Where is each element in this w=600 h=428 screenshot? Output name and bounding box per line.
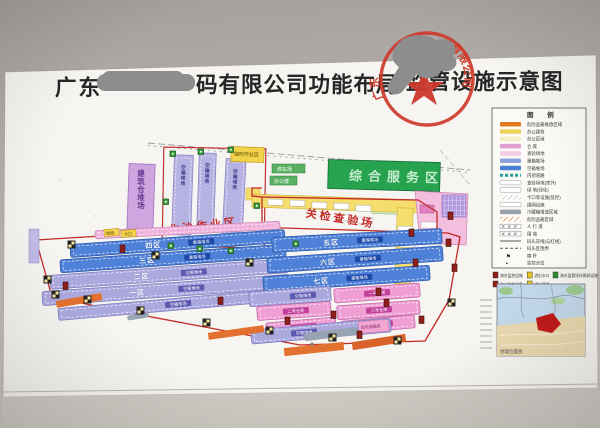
temp-area-label: 临时作业区: [234, 151, 259, 159]
legend-label: 空箱堆场: [527, 165, 545, 172]
legend-label: 绿 地(绿化): [527, 187, 549, 194]
gate-label: 卡口: [124, 230, 132, 237]
customs-facility-marker: [384, 299, 389, 307]
road-label-box: [356, 205, 371, 212]
legend-swatch: [500, 166, 521, 171]
camera-checkpoint-marker: [394, 337, 401, 344]
legend-swatch: [500, 159, 521, 164]
yard-badge-label: 空箱堆场: [203, 162, 210, 185]
legend-label: 旗 杆: [527, 252, 538, 259]
legend-swatch: [500, 188, 521, 193]
road-label-box: [290, 200, 305, 207]
legend-chip: 海关监控设施: [493, 272, 523, 278]
title-redaction-blob-2: [103, 71, 183, 83]
marker-dot: [199, 248, 201, 250]
legend-label: 危险品箱区域: [527, 216, 554, 223]
plan-drawing: 广东 码有限公司功能布局 监管设施示意图 广东 有限公司 建筑仓堆场 空箱堆场空…: [0, 0, 600, 428]
construction-yard: 建筑仓堆场: [127, 164, 155, 233]
zone-label: 一区: [129, 288, 146, 297]
legend-label: 卡口等设施(监控): [527, 194, 561, 201]
road-label-box: [312, 202, 327, 209]
zone-label: 四区: [145, 241, 162, 250]
marker-dot: [200, 151, 202, 153]
legend-swatch: [500, 137, 521, 142]
customs-facility-marker: [218, 297, 223, 305]
legend-swatch: [500, 129, 521, 134]
customs-facility-marker: [63, 282, 68, 290]
marker-dot: [165, 201, 167, 203]
customs-facility-marker: [376, 288, 381, 296]
camera-checkpoint-marker: [137, 307, 144, 314]
gate-marker: [198, 149, 204, 155]
camera-checkpoint-marker: [152, 252, 159, 259]
office-label: 办公楼: [274, 178, 289, 185]
construction-yard-label: 建筑仓堆场: [136, 168, 145, 210]
gate-marker: [170, 151, 176, 157]
zone-label: 二区: [133, 272, 150, 281]
legend-label: 冷藏箱堆放区域: [527, 209, 558, 216]
legend-chip: 进出卡口: [527, 272, 549, 278]
gate-marker: [228, 248, 234, 254]
gate-marker: [293, 241, 299, 247]
service-area-label: 综合服务区: [349, 168, 444, 185]
chip-label: 海关监管场所围网设施: [560, 273, 598, 278]
legend-label: 围网设施: [527, 201, 545, 208]
scene: 广东 码有限公司功能布局 监管设施示意图 广东 有限公司 建筑仓堆场 空箱堆场空…: [0, 0, 600, 428]
legend: 图 例 危险品箱堆放区域办公建筑办公区域仓 库查验场地重箱堆场空箱堆场内部道路查…: [492, 108, 598, 287]
legend-swatch: [500, 195, 521, 200]
legend-label: 围 墙: [527, 231, 538, 238]
legend-label: 办公建筑: [527, 128, 545, 135]
legend-label: 人 行 道: [527, 223, 543, 230]
customs-facility-marker: [357, 331, 362, 339]
weighbridge-label: 地磅: [106, 229, 114, 236]
marker-dot: [230, 250, 232, 252]
legend-label: 监控点位: [527, 260, 545, 267]
customs-facility-marker: [285, 317, 290, 325]
legend-swatch: [500, 180, 521, 185]
dot-icon: ▪: [506, 261, 508, 267]
legend-label: 查验场地: [527, 150, 545, 157]
legend-label: 码头岸线(与红线): [527, 238, 561, 245]
construction-yard-label: 建筑仓堆场: [136, 168, 145, 210]
gate-marker: [197, 246, 203, 252]
legend-title: 图 例: [527, 110, 560, 119]
camera-checkpoint-marker: [266, 327, 273, 334]
camera-checkpoint-marker: [329, 334, 336, 341]
legend-label: 查验场地(室外): [527, 179, 557, 186]
camera-checkpoint-marker: [84, 296, 91, 303]
marker-dot: [256, 205, 258, 207]
parking-label: 停车场: [277, 166, 292, 173]
chip-label: 进出卡口: [534, 273, 549, 278]
legend-label: 仓 库: [527, 143, 538, 150]
road-label-box: [334, 203, 349, 210]
title-middle: 码有限公司功能布局: [196, 72, 399, 97]
parking-grid: [442, 195, 466, 217]
chip-swatch: [493, 272, 498, 278]
customs-facility-marker: [452, 264, 457, 272]
legend-swatch: [500, 122, 521, 127]
legend-label: 危险品箱堆放区域: [527, 121, 563, 128]
gate-marker: [168, 243, 174, 249]
customs-facility-marker: [331, 311, 336, 319]
legend-swatch: [500, 202, 521, 207]
gate-marker: [163, 199, 169, 205]
legend-label: 办公区域: [527, 136, 545, 143]
customs-facility-marker: [120, 245, 125, 253]
legend-swatch: [500, 217, 521, 222]
chip-label: 海关监控设施: [500, 273, 523, 278]
title-prefix: 广东: [55, 75, 102, 100]
gate-marker: [228, 147, 234, 153]
legend-swatch: [500, 144, 521, 149]
legend-chip: 海关监管场所围网设施: [553, 272, 598, 278]
legend-label: 重箱堆场: [527, 158, 545, 165]
customs-facility-marker: [446, 239, 451, 247]
legend-swatch: [500, 151, 521, 156]
road-label-box: [268, 199, 283, 206]
marker-dot: [230, 149, 232, 151]
legend-swatch: [500, 210, 521, 215]
customs-facility-marker: [413, 259, 418, 267]
zone-label: 五区: [323, 238, 339, 247]
chip-swatch: [553, 272, 558, 278]
marker-dot: [170, 245, 172, 247]
legend-label: 码头区围界: [527, 245, 550, 252]
camera-checkpoint-marker: [246, 259, 253, 266]
camera-checkpoint-marker: [448, 299, 455, 306]
chip-swatch: [527, 272, 532, 278]
customs-facility-marker: [419, 316, 424, 324]
yard-badge-label: 空箱堆场: [179, 164, 186, 187]
marker-dot: [295, 243, 297, 245]
camera-checkpoint-marker: [44, 276, 51, 283]
flag-icon: ⚑: [506, 254, 511, 260]
inset-caption: 地理位置图: [500, 348, 523, 355]
customs-facility-marker: [409, 229, 414, 237]
customs-facility-marker: [448, 212, 453, 220]
photo-of-plan: { "title": { "prefix": "广东", "middle": "…: [0, 0, 600, 428]
legend-label: 内部道路: [527, 172, 545, 179]
camera-checkpoint-marker: [52, 291, 59, 298]
marker-dot: [172, 153, 174, 155]
gate-marker: [254, 203, 260, 209]
camera-checkpoint-marker: [203, 319, 210, 326]
camera-checkpoint-marker: [68, 241, 75, 248]
